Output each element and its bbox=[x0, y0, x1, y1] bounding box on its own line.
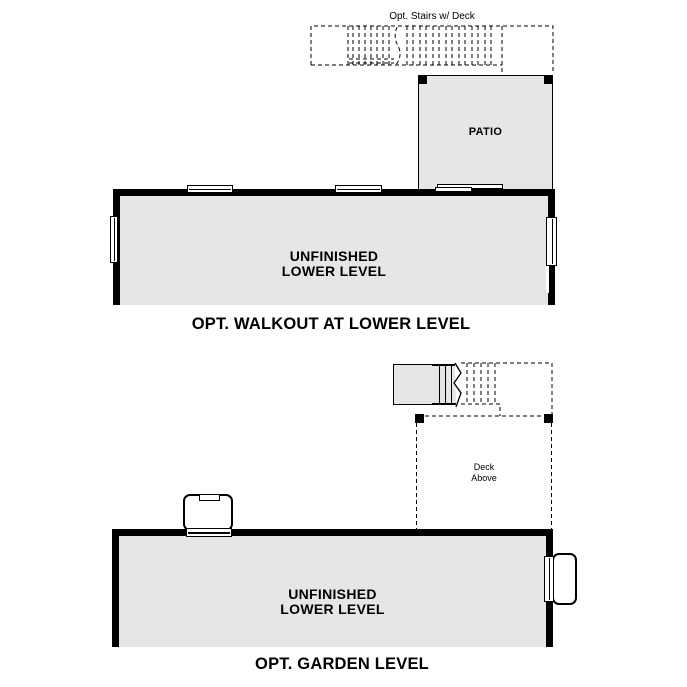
floorplan-canvas: Opt. Stairs w/ Deck PATIO UNFINISHED LOW… bbox=[0, 0, 687, 687]
walkout-room-area bbox=[113, 189, 555, 305]
stair-break-zigzag bbox=[450, 361, 466, 409]
walkout-room-label: UNFINISHED LOWER LEVEL bbox=[113, 249, 555, 279]
egress-window-well bbox=[552, 553, 577, 605]
window bbox=[186, 528, 232, 537]
upper-stairs-break bbox=[395, 27, 400, 65]
garden-caption: OPT. GARDEN LEVEL bbox=[112, 655, 572, 674]
garden-room-label-line2: LOWER LEVEL bbox=[112, 602, 553, 617]
garden-stairs-bottom bbox=[461, 404, 500, 416]
walkout-room-label-line2: LOWER LEVEL bbox=[113, 264, 555, 279]
deck-post bbox=[415, 414, 424, 423]
upper-stairs-outline bbox=[311, 26, 553, 74]
walkout-wall-top bbox=[113, 189, 555, 196]
deck-above-label-line1: Deck bbox=[416, 462, 552, 473]
window-glass-line bbox=[188, 532, 230, 533]
deck-post bbox=[418, 75, 427, 84]
opt-stairs-deck-label: Opt. Stairs w/ Deck bbox=[311, 11, 553, 22]
stair-tread-line bbox=[439, 366, 440, 403]
window bbox=[187, 185, 233, 193]
deck-above-label-line2: Above bbox=[416, 473, 552, 484]
stair-landing bbox=[393, 364, 433, 405]
patio-label: PATIO bbox=[418, 126, 553, 138]
walkout-caption: OPT. WALKOUT AT LOWER LEVEL bbox=[100, 315, 562, 334]
garden-room-label: UNFINISHED LOWER LEVEL bbox=[112, 587, 553, 617]
deck-above-label: Deck Above bbox=[416, 462, 552, 483]
stair-tread-line bbox=[445, 366, 446, 403]
window bbox=[335, 185, 382, 193]
garden-wall-top bbox=[112, 529, 553, 536]
window-glass-line bbox=[337, 189, 380, 190]
window-glass-line bbox=[188, 533, 230, 534]
sliding-door-panel bbox=[435, 187, 472, 192]
deck-post bbox=[544, 75, 553, 84]
garden-room-label-line1: UNFINISHED bbox=[112, 587, 553, 602]
window-glass-line bbox=[189, 189, 231, 190]
window-well-ladder bbox=[199, 494, 220, 501]
deck-post bbox=[544, 414, 553, 423]
walkout-room-label-line1: UNFINISHED bbox=[113, 249, 555, 264]
garden-stairs-outline bbox=[461, 363, 552, 414]
